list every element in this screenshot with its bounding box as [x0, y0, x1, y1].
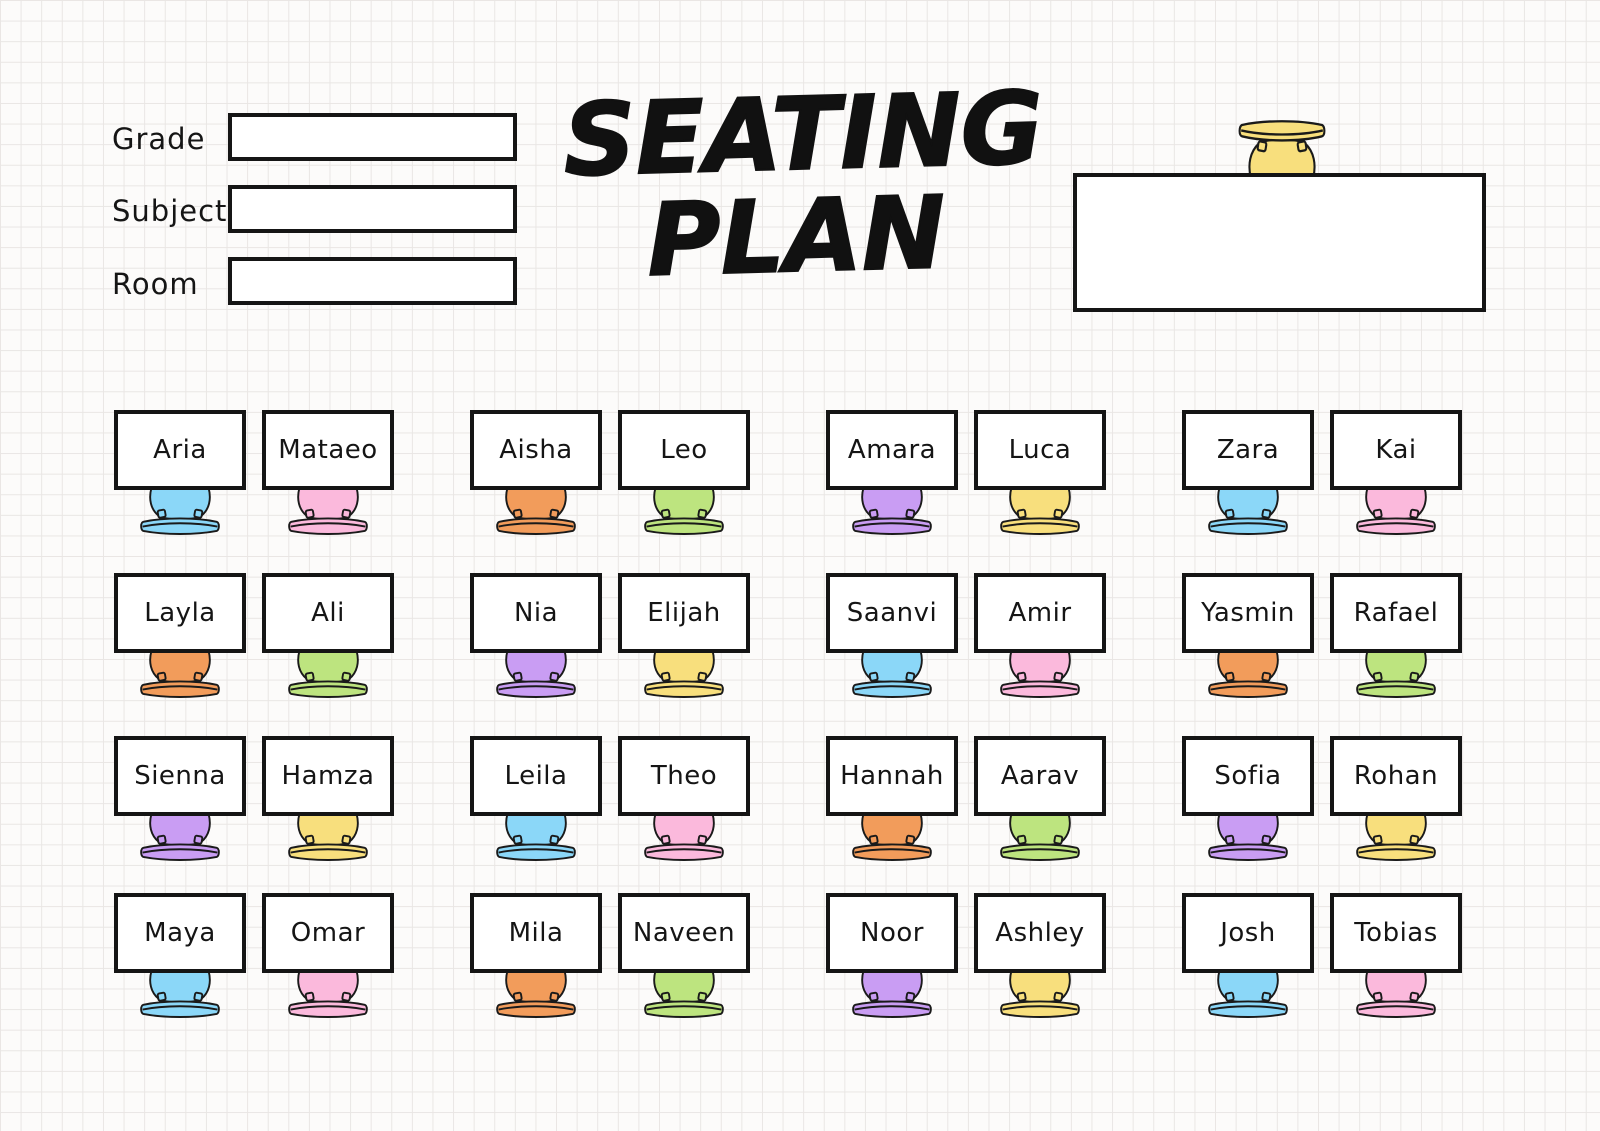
chair-icon: [1204, 971, 1292, 1018]
student-desk: Layla: [114, 573, 246, 699]
student-name-label: Ali: [311, 598, 345, 628]
subject-label: Subject: [112, 194, 227, 228]
desk-name-card[interactable]: Leila: [470, 736, 602, 816]
room-input[interactable]: [228, 257, 517, 305]
student-desk: Josh: [1182, 893, 1314, 1019]
chair-icon: [284, 651, 372, 698]
desk-name-card[interactable]: Omar: [262, 893, 394, 973]
chair-icon: [1352, 814, 1440, 861]
chair-icon: [136, 651, 224, 698]
student-desk: Nia: [470, 573, 602, 699]
desk-name-card[interactable]: Ashley: [974, 893, 1106, 973]
student-name-label: Sienna: [134, 761, 226, 791]
chair-icon: [996, 651, 1084, 698]
chair-icon: [848, 488, 936, 535]
desk-name-card[interactable]: Aarav: [974, 736, 1106, 816]
student-desk: Naveen: [618, 893, 750, 1019]
desk-name-card[interactable]: Hannah: [826, 736, 958, 816]
grade-label: Grade: [112, 122, 205, 156]
chair-icon: [640, 488, 728, 535]
student-name-label: Elijah: [647, 598, 721, 628]
student-desk: Maya: [114, 893, 246, 1019]
chair-icon: [1352, 488, 1440, 535]
student-desk: Sienna: [114, 736, 246, 862]
student-desk: Luca: [974, 410, 1106, 536]
chair-icon: [136, 814, 224, 861]
student-desk: Amara: [826, 410, 958, 536]
student-name-label: Mataeo: [278, 435, 377, 465]
desk-name-card[interactable]: Amir: [974, 573, 1106, 653]
student-name-label: Omar: [291, 918, 365, 948]
student-name-label: Layla: [144, 598, 215, 628]
student-name-label: Hannah: [840, 761, 944, 791]
desk-name-card[interactable]: Maya: [114, 893, 246, 973]
page-title-line1: SEATING: [562, 78, 1025, 192]
student-name-label: Leila: [505, 761, 568, 791]
desk-name-card[interactable]: Luca: [974, 410, 1106, 490]
student-name-label: Leo: [660, 435, 707, 465]
student-desk: Saanvi: [826, 573, 958, 699]
chair-icon: [492, 971, 580, 1018]
student-name-label: Amara: [848, 435, 936, 465]
student-desk: Rafael: [1330, 573, 1462, 699]
student-name-label: Kai: [1375, 435, 1416, 465]
seating-plan-page: { "title": { "line1": "SEATING", "line2"…: [0, 0, 1600, 1131]
student-name-label: Sofia: [1214, 761, 1281, 791]
student-desk: Theo: [618, 736, 750, 862]
desk-name-card[interactable]: Aria: [114, 410, 246, 490]
chair-icon: [1352, 971, 1440, 1018]
student-desk: Ashley: [974, 893, 1106, 1019]
desk-row-4: Maya Omar Mila Naveen Noor Ashley Josh T…: [114, 893, 1462, 1019]
student-desk: Ali: [262, 573, 394, 699]
student-name-label: Maya: [144, 918, 216, 948]
desk-row-3: Sienna Hamza Leila Theo Hannah Aarav Sof…: [114, 736, 1462, 862]
chair-icon: [492, 488, 580, 535]
desk-name-card[interactable]: Layla: [114, 573, 246, 653]
desk-name-card[interactable]: Elijah: [618, 573, 750, 653]
desk-name-card[interactable]: Tobias: [1330, 893, 1462, 973]
desk-name-card[interactable]: Zara: [1182, 410, 1314, 490]
desk-name-card[interactable]: Josh: [1182, 893, 1314, 973]
desk-name-card[interactable]: Hamza: [262, 736, 394, 816]
student-desk: Noor: [826, 893, 958, 1019]
room-label: Room: [112, 267, 199, 301]
desk-name-card[interactable]: Kai: [1330, 410, 1462, 490]
student-name-label: Luca: [1009, 435, 1072, 465]
chair-icon: [1204, 488, 1292, 535]
student-desk: Kai: [1330, 410, 1462, 536]
student-desk: Zara: [1182, 410, 1314, 536]
student-name-label: Nia: [514, 598, 558, 628]
chair-icon: [284, 814, 372, 861]
desk-name-card[interactable]: Sofia: [1182, 736, 1314, 816]
desk-name-card[interactable]: Mataeo: [262, 410, 394, 490]
student-desk: Mila: [470, 893, 602, 1019]
desk-name-card[interactable]: Aisha: [470, 410, 602, 490]
chair-icon: [1204, 814, 1292, 861]
desk-name-card[interactable]: Naveen: [618, 893, 750, 973]
teacher-desk[interactable]: [1073, 173, 1486, 312]
student-desk: Leila: [470, 736, 602, 862]
desk-name-card[interactable]: Nia: [470, 573, 602, 653]
desk-name-card[interactable]: Saanvi: [826, 573, 958, 653]
chair-icon: [284, 488, 372, 535]
chair-icon: [1352, 651, 1440, 698]
student-desk: Elijah: [618, 573, 750, 699]
student-name-label: Aarav: [1001, 761, 1079, 791]
student-desk: Aria: [114, 410, 246, 536]
student-desk: Omar: [262, 893, 394, 1019]
desk-name-card[interactable]: Sienna: [114, 736, 246, 816]
chair-icon: [136, 971, 224, 1018]
student-name-label: Hamza: [282, 761, 375, 791]
student-desk: Hannah: [826, 736, 958, 862]
desk-name-card[interactable]: Mila: [470, 893, 602, 973]
desk-name-card[interactable]: Theo: [618, 736, 750, 816]
chair-icon: [640, 971, 728, 1018]
student-desk: Rohan: [1330, 736, 1462, 862]
chair-icon: [640, 651, 728, 698]
student-desk: Tobias: [1330, 893, 1462, 1019]
student-desk: Yasmin: [1182, 573, 1314, 699]
student-name-label: Aisha: [499, 435, 572, 465]
desk-row-1: Aria Mataeo Aisha Leo Amara Luca Zara Ka…: [114, 410, 1462, 536]
student-name-label: Ashley: [995, 918, 1084, 948]
chair-icon: [996, 488, 1084, 535]
chair-icon: [996, 971, 1084, 1018]
desk-name-card[interactable]: Yasmin: [1182, 573, 1314, 653]
student-name-label: Noor: [860, 918, 924, 948]
student-desk: Aisha: [470, 410, 602, 536]
student-name-label: Josh: [1220, 918, 1276, 948]
desk-name-card[interactable]: Amara: [826, 410, 958, 490]
student-desk: Mataeo: [262, 410, 394, 536]
chair-icon: [492, 814, 580, 861]
desk-name-card[interactable]: Noor: [826, 893, 958, 973]
desk-name-card[interactable]: Rohan: [1330, 736, 1462, 816]
chair-icon: [136, 488, 224, 535]
page-title: SEATING PLAN: [562, 78, 1027, 294]
subject-input[interactable]: [228, 185, 517, 233]
chair-icon: [848, 971, 936, 1018]
grade-input[interactable]: [228, 113, 517, 161]
student-name-label: Tobias: [1354, 918, 1438, 948]
desk-row-2: Layla Ali Nia Elijah Saanvi Amir Yasmin …: [114, 573, 1462, 699]
student-desk: Hamza: [262, 736, 394, 862]
student-name-label: Theo: [651, 761, 717, 791]
teacher-chair-icon: [1234, 120, 1330, 178]
student-name-label: Zara: [1217, 435, 1279, 465]
chair-icon: [848, 814, 936, 861]
student-name-label: Naveen: [633, 918, 735, 948]
student-name-label: Mila: [509, 918, 564, 948]
chair-icon: [640, 814, 728, 861]
desk-name-card[interactable]: Rafael: [1330, 573, 1462, 653]
chair-icon: [1204, 651, 1292, 698]
student-name-label: Saanvi: [847, 598, 937, 628]
chair-icon: [492, 651, 580, 698]
student-name-label: Rafael: [1354, 598, 1439, 628]
desk-name-card[interactable]: Leo: [618, 410, 750, 490]
chair-icon: [284, 971, 372, 1018]
student-desk: Leo: [618, 410, 750, 536]
student-desk: Amir: [974, 573, 1106, 699]
student-name-label: Rohan: [1354, 761, 1438, 791]
student-name-label: Aria: [153, 435, 207, 465]
student-name-label: Amir: [1008, 598, 1071, 628]
chair-icon: [996, 814, 1084, 861]
desk-name-card[interactable]: Ali: [262, 573, 394, 653]
student-desk: Sofia: [1182, 736, 1314, 862]
student-desk: Aarav: [974, 736, 1106, 862]
chair-icon: [848, 651, 936, 698]
student-name-label: Yasmin: [1201, 598, 1295, 628]
